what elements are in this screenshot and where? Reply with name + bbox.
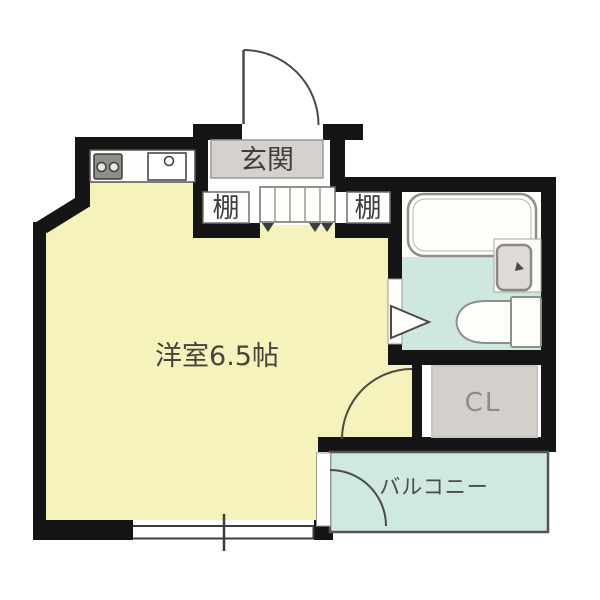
wall-above-balcony xyxy=(318,437,556,452)
wall-left xyxy=(33,222,46,540)
shelf-right-label: 棚 xyxy=(355,193,382,224)
closet-label: CL xyxy=(465,388,502,418)
wall-entrance-top-right xyxy=(323,124,363,140)
entrance-step xyxy=(260,187,335,222)
toilet-bowl-icon xyxy=(457,301,512,343)
balcony-door-opening xyxy=(317,453,331,526)
wall-bath-bottom xyxy=(388,350,556,365)
balcony-label: バルコニー xyxy=(379,475,489,499)
wall-kitchen-left xyxy=(75,137,90,207)
wall-entrance-right xyxy=(330,140,345,192)
wall-right xyxy=(541,177,556,452)
wall-under-shelf-left xyxy=(193,223,260,238)
stove-burner-left-icon xyxy=(97,163,106,172)
wall-bath-top xyxy=(343,177,556,192)
main-room-label: 洋室6.5帖 xyxy=(155,341,279,372)
entrance-label: 玄関 xyxy=(240,145,294,176)
floor-plan-canvas: 玄関 棚 棚 洋室6.5帖 CL バルコニー xyxy=(0,0,600,600)
sink-faucet-icon xyxy=(165,157,174,166)
shelf-left-label: 棚 xyxy=(213,193,240,224)
wall-under-shelf-right xyxy=(335,223,402,238)
washbasin-icon xyxy=(497,245,531,290)
toilet-tank-icon xyxy=(511,297,541,347)
floor-plan: 玄関 棚 棚 洋室6.5帖 CL バルコニー xyxy=(0,0,600,600)
stove-burner-right-icon xyxy=(110,163,119,172)
wall-entrance-top-left xyxy=(208,124,242,140)
wall-closet-stub xyxy=(412,365,422,439)
kitchen-counter xyxy=(90,150,195,182)
wall-bottom-left xyxy=(33,520,133,540)
